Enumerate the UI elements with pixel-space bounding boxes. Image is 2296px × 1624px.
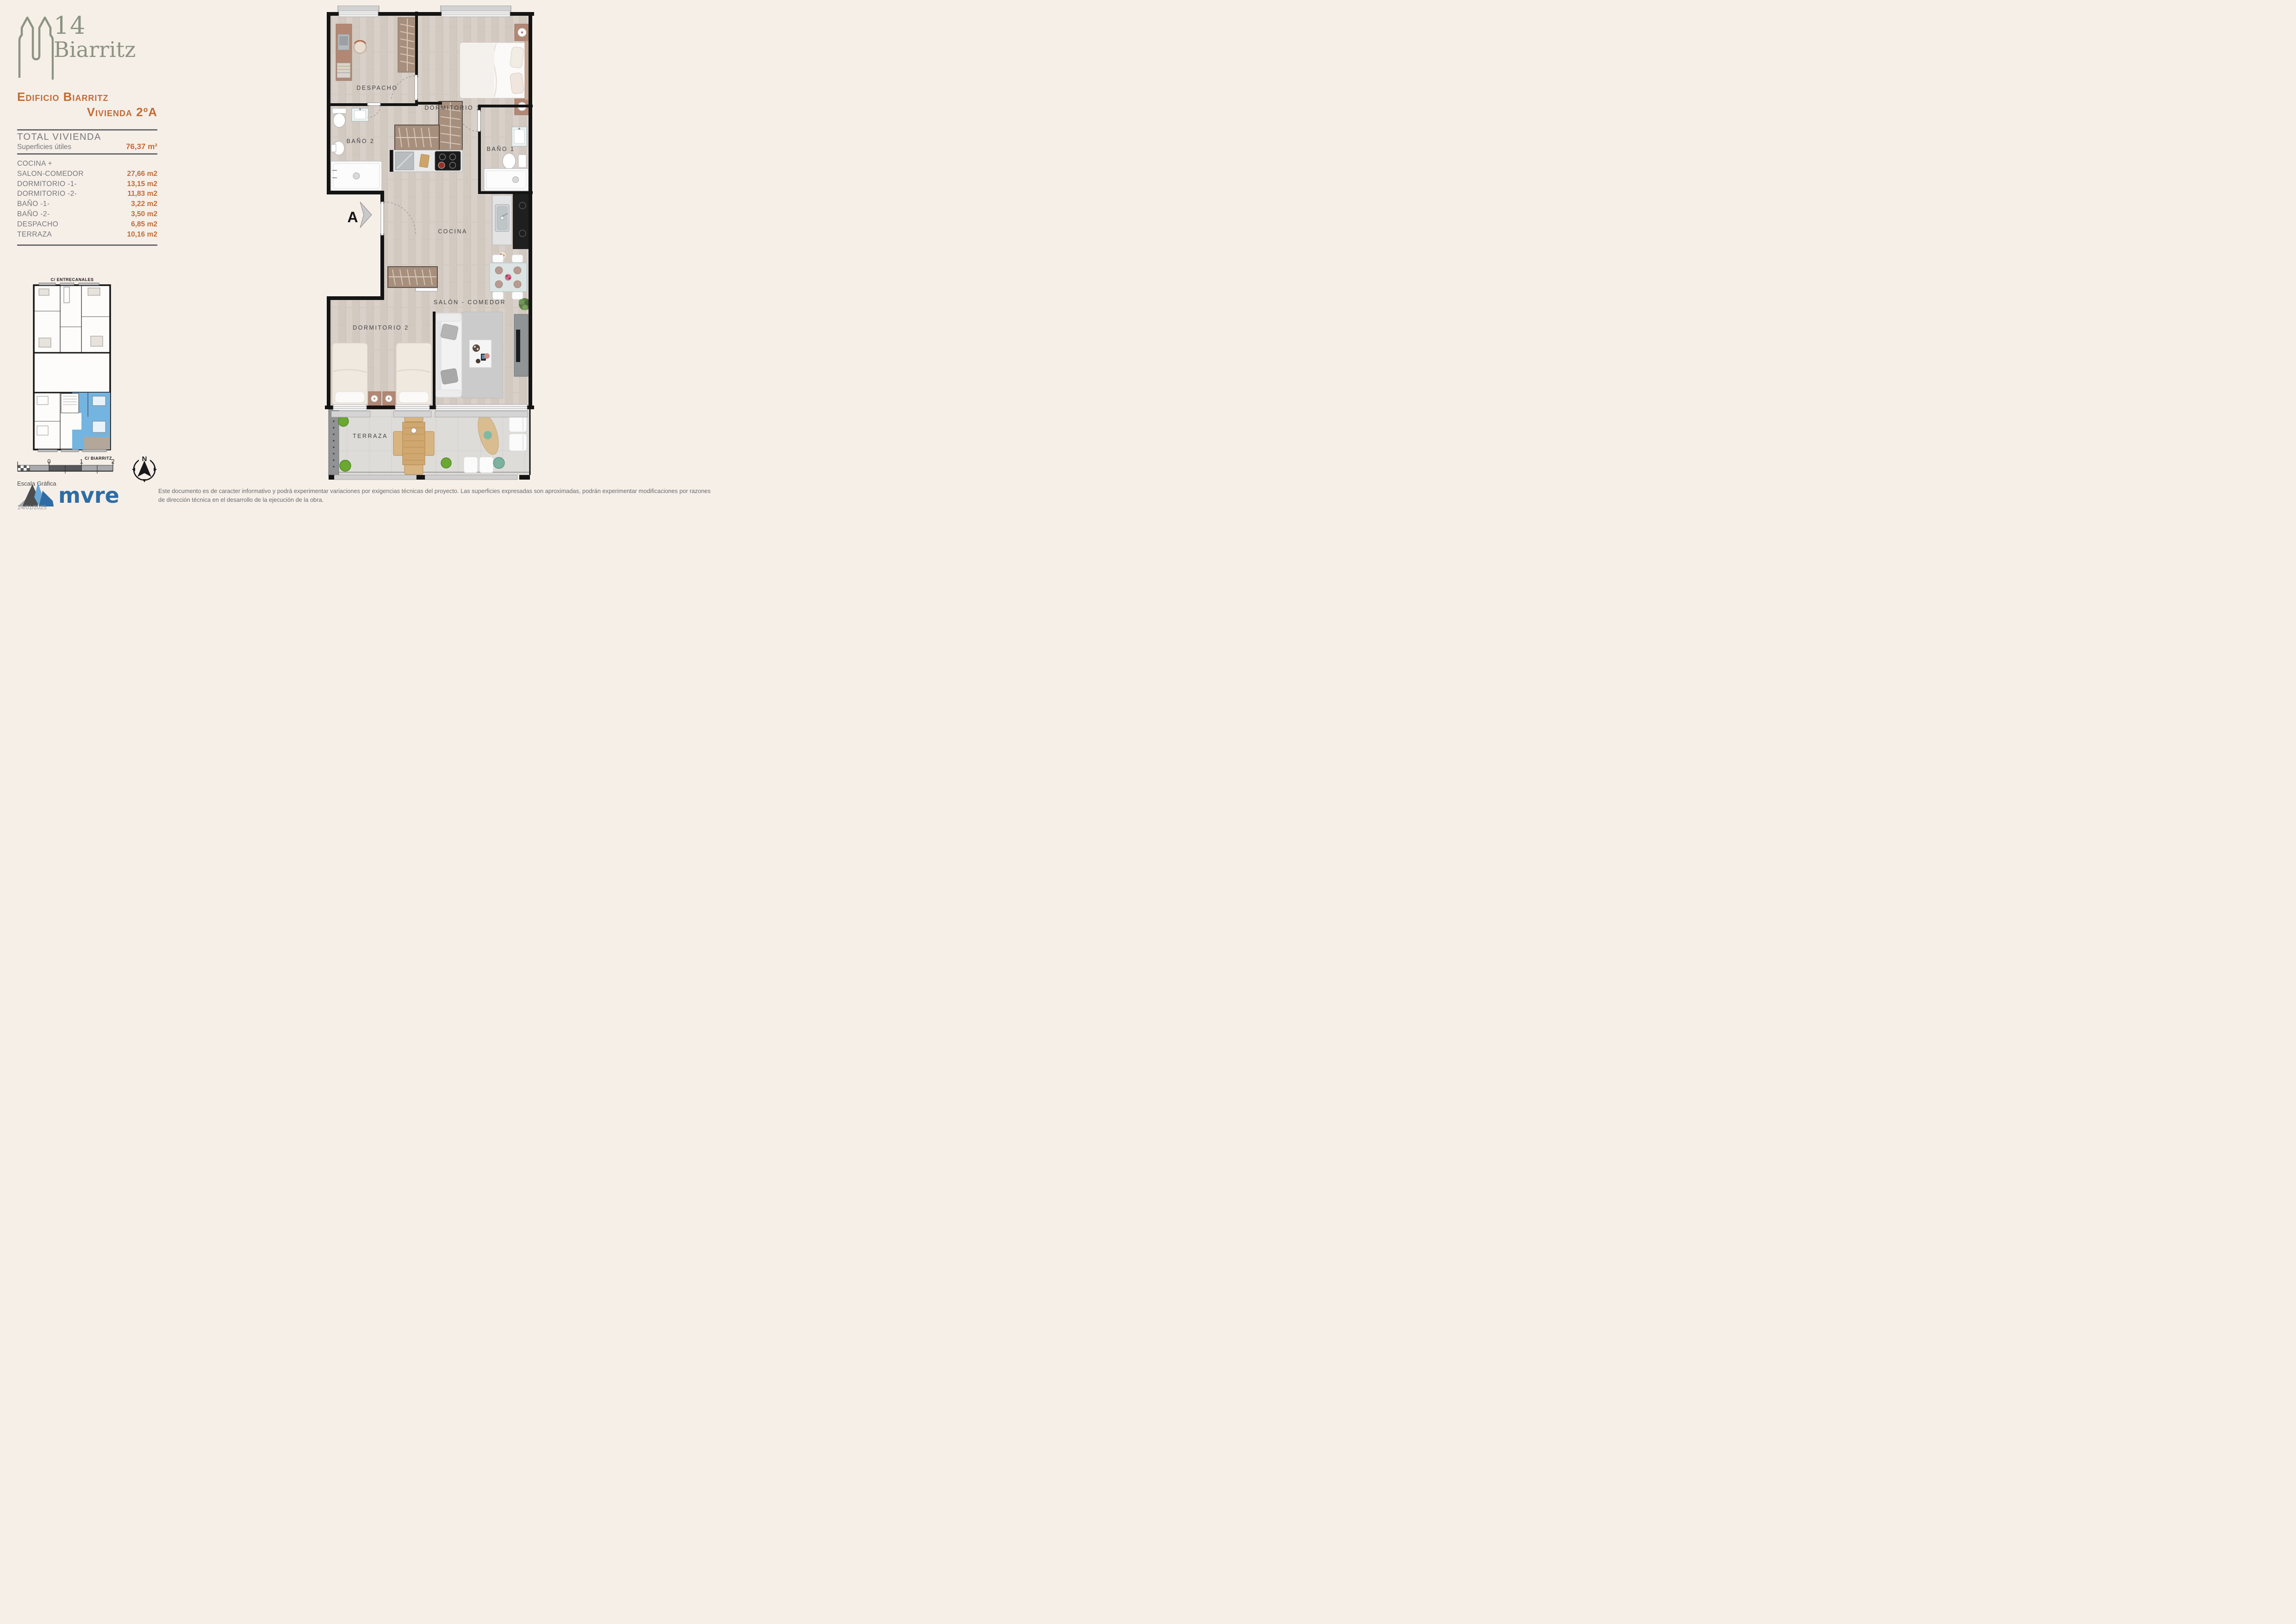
table-row: SALON-COMEDOR 27,66 m2 (17, 170, 157, 180)
divider (17, 153, 157, 155)
scale-bar: 0 1 2 (17, 458, 117, 475)
divider (17, 244, 157, 246)
area-label: BAÑO -2- (17, 210, 50, 219)
date-label: 24/01/2025 (18, 504, 47, 511)
building-icon (18, 10, 54, 80)
brand-logo: 14 Biarritz (18, 10, 166, 70)
sheet-title: Edificio Biarritz Vivienda 2ºA (17, 89, 157, 119)
area-label: DORMITORIO -2- (17, 190, 77, 198)
table-row: BAÑO -1- 3,22 m2 (17, 200, 157, 210)
entrance-label: A (347, 209, 358, 225)
room-label-salon: SALÓN - COMEDOR (434, 299, 506, 306)
summary-subtitle: Superficies útiles (17, 143, 71, 151)
table-row: DORMITORIO -1- 13,15 m2 (17, 180, 157, 190)
area-label: SALON-COMEDOR (17, 170, 84, 178)
table-row: COCINA + (17, 160, 157, 170)
brand-number: 14 (54, 14, 136, 38)
compass-icon: N (131, 453, 158, 483)
room-label-bano1: BAÑO 1 (487, 146, 515, 152)
room-label-terraza: TERRAZA (353, 433, 388, 439)
divider (17, 129, 157, 131)
room-label-bano2: BAÑO 2 (347, 138, 375, 144)
area-label: COCINA + (17, 160, 52, 168)
area-value: 10,16 m2 (127, 231, 158, 239)
room-label-cocina: COCINA (438, 228, 467, 235)
area-value: 27,66 m2 (127, 170, 158, 178)
table-row: BAÑO -2- 3,50 m2 (17, 210, 157, 220)
room-label-despacho: DESPACHO (356, 85, 398, 91)
entrance-marker: A (347, 202, 372, 228)
floor-plan: A DESPACHO DORMITORIO 1 BAÑO 2 BAÑO 1 CO… (325, 6, 537, 486)
area-value: 3,50 m2 (131, 210, 157, 219)
unit-title: Vivienda 2ºA (17, 105, 157, 120)
area-value: 11,83 m2 (127, 190, 157, 198)
street-label-top: C/ ENTRECANALES (32, 277, 112, 282)
summary-total: 76,37 m² (126, 142, 157, 151)
area-label: TERRAZA (17, 231, 52, 239)
area-value: 13,15 m2 (127, 180, 158, 188)
room-label-dormitorio2: DORMITORIO 2 (353, 325, 409, 331)
key-plan (32, 282, 112, 456)
north-arrow-icon (137, 461, 151, 477)
floorplan-sheet: { "brand": { "number": "14", "name": "Bi… (0, 0, 726, 513)
room-label-dormitorio1: DORMITORIO 1 (424, 105, 480, 111)
area-value: 3,22 m2 (131, 200, 157, 208)
mvre-logo-text: mvre (58, 483, 119, 508)
summary-row: Superficies útiles 76,37 m² (17, 142, 157, 151)
area-value: 6,85 m2 (131, 220, 157, 229)
area-label: BAÑO -1- (17, 200, 50, 208)
summary-title: TOTAL VIVIENDA (17, 132, 101, 143)
area-label: DESPACHO (17, 220, 58, 229)
areas-table: COCINA + SALON-COMEDOR 27,66 m2 DORMITOR… (17, 160, 157, 240)
entrance-arrow-icon (360, 202, 372, 228)
building-title: Edificio Biarritz (17, 89, 157, 105)
table-row: DORMITORIO -2- 11,83 m2 (17, 190, 157, 200)
table-row: TERRAZA 10,16 m2 (17, 231, 157, 241)
disclaimer-text: Este documento es de caracter informativ… (158, 487, 716, 504)
table-row: DESPACHO 6,85 m2 (17, 220, 157, 231)
area-label: DORMITORIO -1- (17, 180, 77, 188)
brand-name: Biarritz (54, 39, 136, 60)
